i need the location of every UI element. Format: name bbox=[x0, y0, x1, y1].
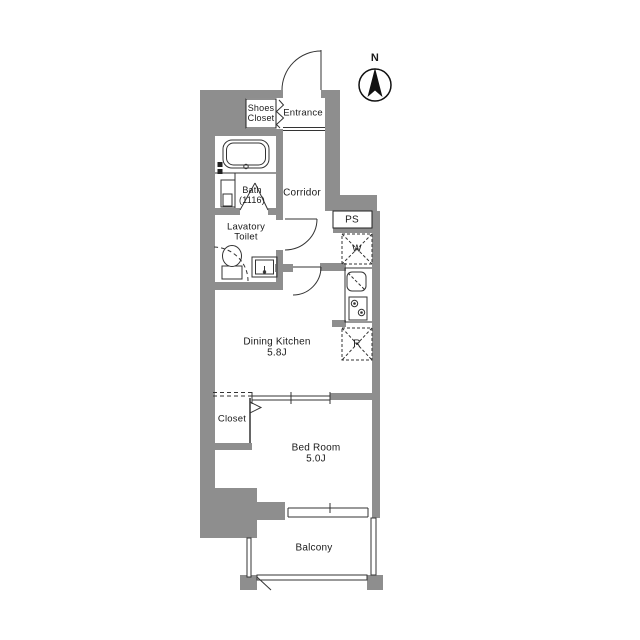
vanity-sink-icon bbox=[252, 257, 277, 277]
stove-icon bbox=[349, 297, 367, 320]
dining-kitchen-size-label: 5.8J bbox=[267, 348, 287, 359]
north-compass-icon bbox=[359, 68, 391, 101]
shoes-closet-label-line1: Shoes bbox=[248, 103, 275, 113]
bath-size-label: (1116) bbox=[239, 195, 265, 205]
bedroom-window bbox=[288, 503, 368, 517]
lavatory-door bbox=[285, 219, 317, 250]
dining-kitchen-door bbox=[293, 267, 321, 295]
bedroom-size-label: 5.0J bbox=[306, 454, 326, 465]
toilet-icon bbox=[222, 246, 242, 280]
bath-label: Bath bbox=[242, 185, 261, 195]
pipe-space-label: PS bbox=[345, 215, 359, 226]
corridor-label: Corridor bbox=[283, 188, 321, 199]
kitchen-sink-icon bbox=[347, 272, 366, 291]
shoes-closet-label-line2: Closet bbox=[248, 113, 275, 123]
dining-kitchen-label: Dining Kitchen bbox=[243, 337, 310, 348]
sliding-door-dk-bedroom bbox=[252, 392, 330, 404]
washer-label: W bbox=[352, 244, 362, 255]
bedroom-label: Bed Room bbox=[292, 443, 341, 454]
closet-folding-door-dashed bbox=[213, 393, 252, 397]
balcony-railing bbox=[247, 518, 376, 590]
floor-plan: Shoes Closet Entrance Bath (1116) Corrid… bbox=[0, 0, 640, 640]
fridge-label: R bbox=[353, 339, 360, 350]
lavatory-label-line2: Toilet bbox=[234, 232, 257, 243]
balcony-label: Balcony bbox=[296, 543, 333, 554]
entrance-label: Entrance bbox=[283, 108, 323, 119]
bath-faucet-icon bbox=[218, 162, 223, 174]
compass-north-label: N bbox=[371, 52, 379, 64]
closet-label: Closet bbox=[218, 414, 246, 425]
